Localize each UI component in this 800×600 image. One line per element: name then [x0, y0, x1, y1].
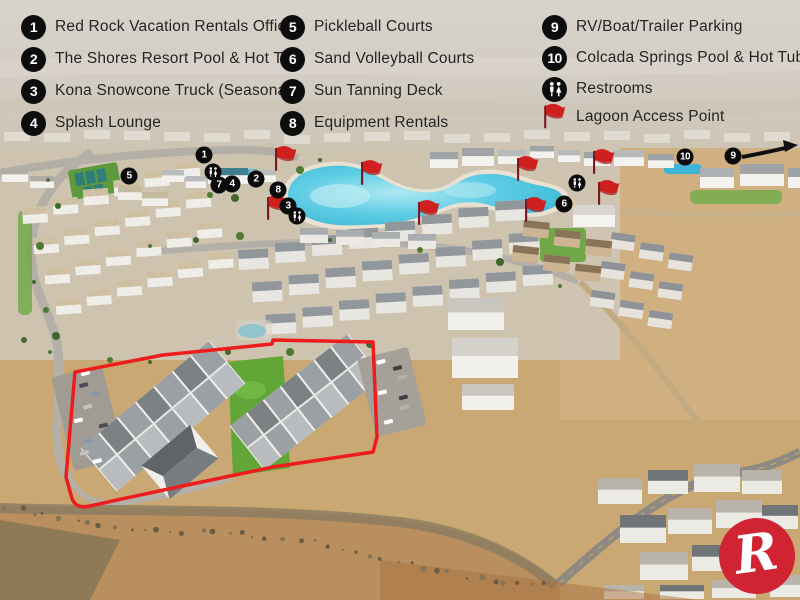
legend-label: RV/Boat/Trailer Parking	[576, 18, 743, 36]
map-marker-9: 9	[725, 148, 742, 165]
legend-badge-1: 1	[21, 15, 46, 40]
annotation-layer: 1 Red Rock Vacation Rentals Office 2 The…	[0, 0, 800, 600]
legend-item-tanning-deck: 7 Sun Tanning Deck	[280, 78, 443, 104]
legend-item-office: 1 Red Rock Vacation Rentals Office	[21, 14, 294, 40]
legend-label: Restrooms	[576, 80, 653, 98]
flag-icon	[542, 102, 567, 132]
brand-logo: R	[719, 518, 795, 594]
legend-badge-3: 3	[21, 79, 46, 104]
legend-item-snowcone: 3 Kona Snowcone Truck (Seasonal)	[21, 78, 295, 104]
legend-item-shores-pool: 2 The Shores Resort Pool & Hot Tub	[21, 46, 300, 72]
legend-badge-9: 9	[542, 15, 567, 40]
map-restroom-icon	[205, 164, 222, 181]
legend-item-volleyball: 6 Sand Volleyball Courts	[280, 46, 474, 72]
legend-label: Lagoon Access Point	[576, 108, 725, 126]
map-marker-8: 8	[270, 182, 287, 199]
map-restroom-icon	[289, 208, 306, 225]
legend-label: Colcada Springs Pool & Hot Tubs	[576, 49, 800, 67]
map-marker-2: 2	[248, 171, 265, 188]
annotated-resort-map: 1 Red Rock Vacation Rentals Office 2 The…	[0, 0, 800, 600]
legend-label: Pickleball Courts	[314, 18, 433, 36]
legend-item-restrooms: Restrooms	[542, 76, 653, 102]
legend-badge-4: 4	[21, 111, 46, 136]
legend-badge-6: 6	[280, 47, 305, 72]
map-marker-6: 6	[556, 196, 573, 213]
map-marker-1: 1	[196, 147, 213, 164]
legend-badge-7: 7	[280, 79, 305, 104]
legend-label: Sand Volleyball Courts	[314, 50, 474, 68]
map-restroom-icon	[569, 175, 586, 192]
legend-badge-10: 10	[542, 46, 567, 71]
legend-label: Kona Snowcone Truck (Seasonal)	[55, 82, 295, 100]
restroom-icon	[542, 77, 567, 102]
legend-label: Splash Lounge	[55, 114, 161, 132]
legend-item-pickleball: 5 Pickleball Courts	[280, 14, 433, 40]
legend-badge-2: 2	[21, 47, 46, 72]
map-marker-10: 10	[677, 149, 694, 166]
legend-item-colcada-pool: 10 Colcada Springs Pool & Hot Tubs	[542, 45, 800, 71]
map-marker-5: 5	[121, 168, 138, 185]
legend-item-splash-lounge: 4 Splash Lounge	[21, 110, 161, 136]
legend-item-equipment: 8 Equipment Rentals	[280, 110, 448, 136]
legend-label: Red Rock Vacation Rentals Office	[55, 18, 294, 36]
legend-label: Sun Tanning Deck	[314, 82, 443, 100]
brand-logo-letter: R	[731, 520, 782, 586]
legend-label: The Shores Resort Pool & Hot Tub	[55, 50, 300, 68]
legend-item-rv-parking: 9 RV/Boat/Trailer Parking	[542, 14, 743, 40]
legend-label: Equipment Rentals	[314, 114, 448, 132]
legend-badge-5: 5	[280, 15, 305, 40]
legend-item-lagoon-access: Lagoon Access Point	[542, 104, 725, 130]
legend-badge-8: 8	[280, 111, 305, 136]
